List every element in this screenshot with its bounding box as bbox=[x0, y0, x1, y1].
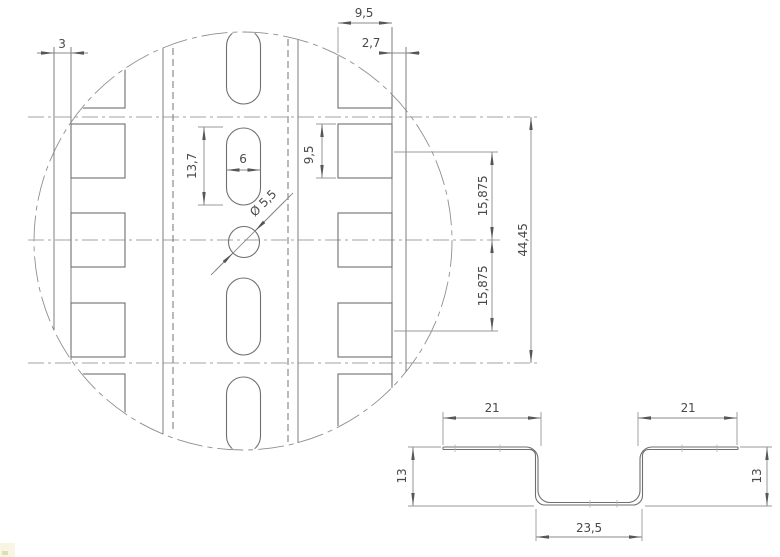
profile-contour bbox=[443, 445, 738, 508]
dim-height-left-label: 13 bbox=[395, 469, 409, 484]
detail-view: 3 9,5 2,7 13,7 6 bbox=[28, 6, 540, 453]
dim-hole-pitch-lower-label: 15,875 bbox=[476, 266, 490, 307]
dim-edge-margin-right: 2,7 bbox=[362, 36, 420, 53]
section-view: 21 21 13 13 23,5 bbox=[395, 401, 772, 541]
dim-hole-diameter: Ø 5,5 bbox=[211, 187, 293, 275]
dim-hole-pattern-span-label: 44,45 bbox=[516, 223, 530, 256]
dim-slot-width: 6 bbox=[227, 152, 261, 170]
dim-channel-width: 23,5 bbox=[536, 509, 642, 541]
horizontal-centerlines bbox=[28, 117, 540, 363]
dim-flange-right-label: 21 bbox=[681, 401, 696, 415]
dim-edge-margin-left-label: 3 bbox=[58, 37, 65, 51]
dim-hole-pattern-span: 44,45 bbox=[516, 117, 531, 363]
square-holes-left bbox=[71, 54, 125, 428]
dim-slot-length-label: 13,7 bbox=[185, 153, 199, 179]
dim-flange-left-label: 21 bbox=[485, 401, 500, 415]
dim-flange-right: 21 bbox=[638, 401, 737, 446]
drawing-sheet: 3 9,5 2,7 13,7 6 bbox=[0, 0, 780, 557]
scan-artifact bbox=[0, 543, 15, 557]
technical-drawing: 3 9,5 2,7 13,7 6 bbox=[0, 0, 780, 557]
square-holes-right bbox=[338, 54, 392, 428]
dim-hole-pitch-upper: 15,875 bbox=[394, 152, 498, 240]
center-slots bbox=[227, 29, 261, 453]
dim-height-left: 13 bbox=[395, 447, 534, 506]
detail-boundary-circle bbox=[34, 32, 452, 450]
dim-square-width-label: 9,5 bbox=[355, 6, 373, 20]
hole-section-ticks bbox=[455, 445, 717, 508]
dim-slot-length: 13,7 bbox=[185, 127, 223, 205]
dim-channel-width-label: 23,5 bbox=[576, 521, 602, 535]
dim-edge-margin-right-label: 2,7 bbox=[362, 36, 380, 50]
dim-square-height-label: 9,5 bbox=[302, 146, 316, 164]
dim-hole-pitch-upper-label: 15,875 bbox=[476, 176, 490, 217]
dim-edge-margin-left: 3 bbox=[37, 37, 88, 53]
dim-height-right: 13 bbox=[645, 447, 772, 506]
dim-slot-width-label: 6 bbox=[239, 152, 246, 166]
dim-flange-left: 21 bbox=[443, 401, 541, 446]
dim-hole-pitch-lower: 15,875 bbox=[394, 240, 498, 331]
dim-square-height: 9,5 bbox=[302, 124, 336, 178]
dim-height-right-label: 13 bbox=[750, 469, 764, 484]
perforation-pattern bbox=[71, 29, 392, 453]
dim-hole-diameter-label: Ø 5,5 bbox=[247, 187, 279, 219]
